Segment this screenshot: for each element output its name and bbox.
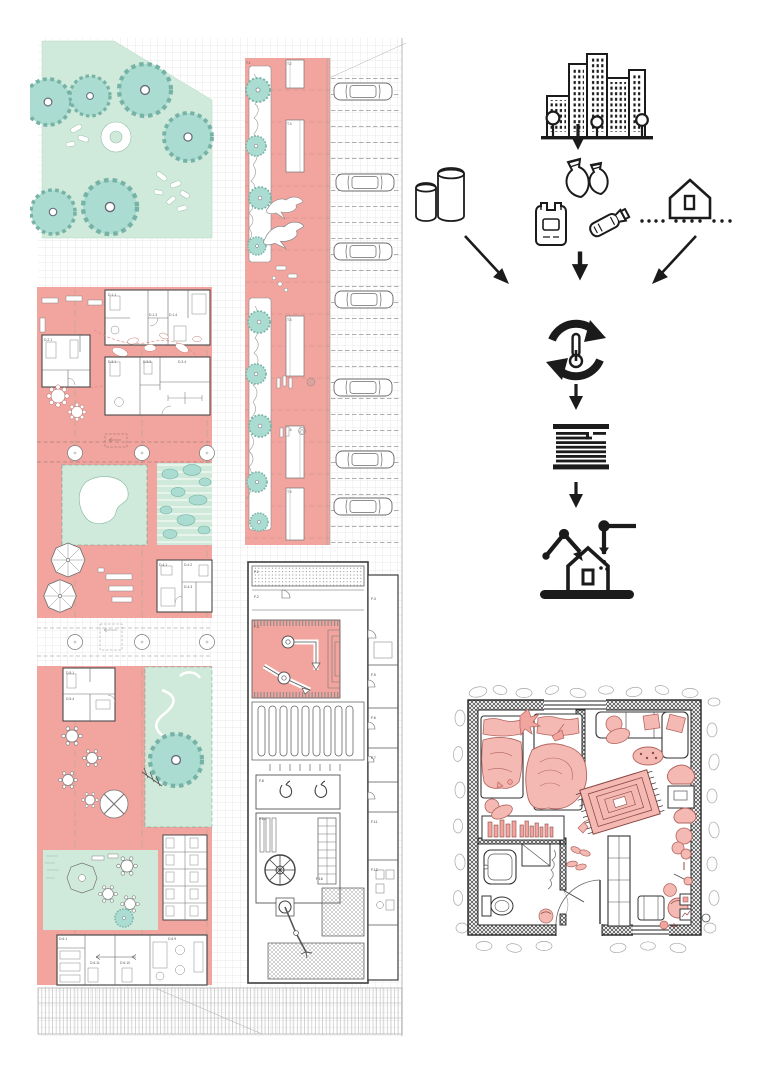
wardrobe [608, 836, 630, 926]
planter-label: T.3 [287, 122, 292, 126]
dwelling-label: D.1.4 [169, 313, 177, 317]
dotted-ground [640, 219, 731, 222]
right-robot-arm [599, 521, 636, 571]
factory-extruder-room: F.8 [256, 775, 340, 809]
promenade-planting-lane [246, 66, 271, 531]
architecture-presentation-board: T.1 T.2 T.3 T.5 T.8 T.9 [0, 0, 764, 1080]
shared-street-2 [37, 618, 215, 666]
dwelling-label: D.6.10 [120, 961, 130, 965]
parked-car [335, 291, 393, 308]
wall-plate [664, 884, 677, 897]
dwelling-label: D.4.3 [184, 585, 192, 589]
left-robot-arm [543, 529, 582, 560]
bottom-walkway-strip [38, 988, 402, 1034]
waste-group [536, 159, 630, 245]
planter-label: T.5 [287, 318, 292, 322]
waste-bags-icon [566, 159, 607, 197]
window [544, 699, 606, 711]
down-arrow-icon [569, 384, 583, 410]
promenade-strip: T.1 T.2 T.3 T.5 T.8 T.9 [245, 58, 330, 545]
lawn-with-tree [142, 667, 212, 827]
planter-label: T.9 [287, 490, 292, 494]
factory-label: F.3 [371, 597, 376, 601]
residential-block: D.1.1 D.1.3 D.1.4 D.2.1 [37, 287, 215, 985]
dwelling-label: D.3.1 [108, 360, 116, 364]
plastic-bottle-icon [588, 207, 630, 238]
dwelling-label: D.5.4 [66, 697, 74, 701]
factory-entry-strip [252, 566, 364, 586]
dwelling-label: D.6.11 [90, 961, 100, 965]
silos-icon [416, 168, 464, 221]
toilet [482, 896, 513, 916]
dwelling-unit-d2: D.2.1 [42, 335, 90, 387]
dwelling-label: D.5.1 [66, 671, 74, 675]
exterior-marker [702, 914, 710, 922]
bed-single [481, 716, 523, 798]
crumpled-blanket [526, 744, 587, 809]
blanket [482, 737, 522, 788]
pouf [633, 747, 663, 765]
dwelling-unit-d3: D.3.1 D.3.3 D.3.4 [105, 357, 210, 415]
pond-garden [62, 465, 147, 545]
entry-opening [556, 924, 602, 936]
dwelling-label: D.3.4 [178, 360, 186, 364]
factory-label: F.10 [259, 817, 266, 821]
factory-label: F.11 [371, 820, 378, 824]
house-site-dotted-icon [640, 180, 731, 223]
dwelling-label: D.6.9 [168, 937, 176, 941]
apartment-floor-plan [448, 678, 758, 978]
cushion [666, 714, 685, 732]
dwelling-label: D.1.1 [108, 293, 116, 297]
factory-robot-room: F.4 [252, 620, 340, 698]
dwelling-unit-d5: D.5.1 D.5.4 [63, 668, 115, 721]
dwelling-label: D.2.1 [44, 338, 52, 342]
parked-car [334, 498, 392, 515]
factory-label: F.4 [254, 625, 259, 629]
factory-label: F.5 [371, 673, 376, 677]
site-masterplan: T.1 T.2 T.3 T.5 T.8 T.9 [30, 30, 430, 1050]
plastic-bag-icon [536, 203, 566, 245]
factory-label: F.2 [254, 595, 259, 599]
converging-arrows-icon [465, 236, 696, 283]
dwelling-label: D.4.1 [159, 563, 167, 567]
park-ring-plaza [101, 122, 131, 152]
dwelling-label: D.1.3 [149, 313, 157, 317]
factory-label: F.16 [316, 877, 323, 881]
play-area [43, 850, 158, 930]
parked-car [336, 174, 394, 191]
factory-label: F.6 [371, 716, 376, 720]
frame [680, 909, 691, 920]
parked-car [336, 451, 394, 468]
robotic-arms-house-icon [540, 521, 636, 599]
cushion [643, 714, 660, 730]
parked-car [334, 243, 392, 260]
mixer-wheel [265, 855, 295, 885]
sink [484, 850, 516, 884]
parking-lane [327, 58, 399, 545]
factory-label: F.12 [371, 868, 378, 872]
city-icon [541, 54, 653, 139]
factory-label: F.1 [254, 570, 259, 574]
planter-label: T.2 [287, 62, 292, 66]
meadow-patch [157, 463, 212, 545]
dwelling-label: D.6.1 [59, 937, 67, 941]
dwelling-unit-d4: D.4.1 D.4.2 D.4.3 [157, 560, 212, 612]
thermometer-glyph [570, 334, 582, 367]
factory-building: F.1 F.2 [248, 562, 398, 983]
down-arrow-icon [569, 482, 583, 508]
recycle-thermometer-icon [546, 320, 606, 380]
storage-stalls [163, 835, 207, 920]
factory-rack-room [252, 702, 364, 760]
dwelling-label: D.3.3 [143, 360, 151, 364]
dwelling-label: D.4.2 [184, 563, 192, 567]
x-circle-plaza [100, 790, 128, 818]
factory-label: F.7 [371, 756, 376, 760]
pillow [483, 719, 521, 737]
planter-label: T.1 [246, 61, 251, 65]
factory-label: F.8 [259, 779, 264, 783]
stairs [318, 818, 336, 884]
bed-double [526, 714, 587, 810]
parked-car [334, 83, 392, 100]
dwelling-unit-d6: D.6.1 D.6.9 D.6.10 D.6.11 [57, 935, 207, 985]
parked-car [334, 379, 392, 396]
material-layers-icon [553, 424, 609, 469]
process-flow-diagram [410, 40, 750, 610]
